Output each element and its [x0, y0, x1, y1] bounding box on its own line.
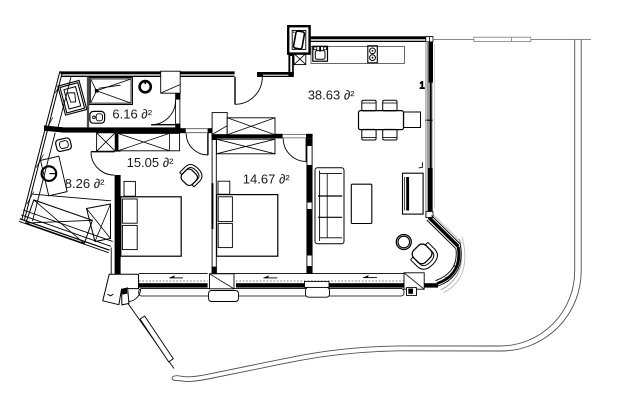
svg-text:8.26 ∂²: 8.26 ∂²	[65, 176, 105, 191]
svg-text:15.05 ∂²: 15.05 ∂²	[127, 155, 175, 170]
svg-text:38.63 ∂²: 38.63 ∂²	[308, 87, 356, 102]
svg-text:14.67 ∂²: 14.67 ∂²	[243, 172, 291, 187]
svg-text:1: 1	[419, 81, 424, 92]
svg-text:6.16 ∂²: 6.16 ∂²	[112, 107, 152, 122]
